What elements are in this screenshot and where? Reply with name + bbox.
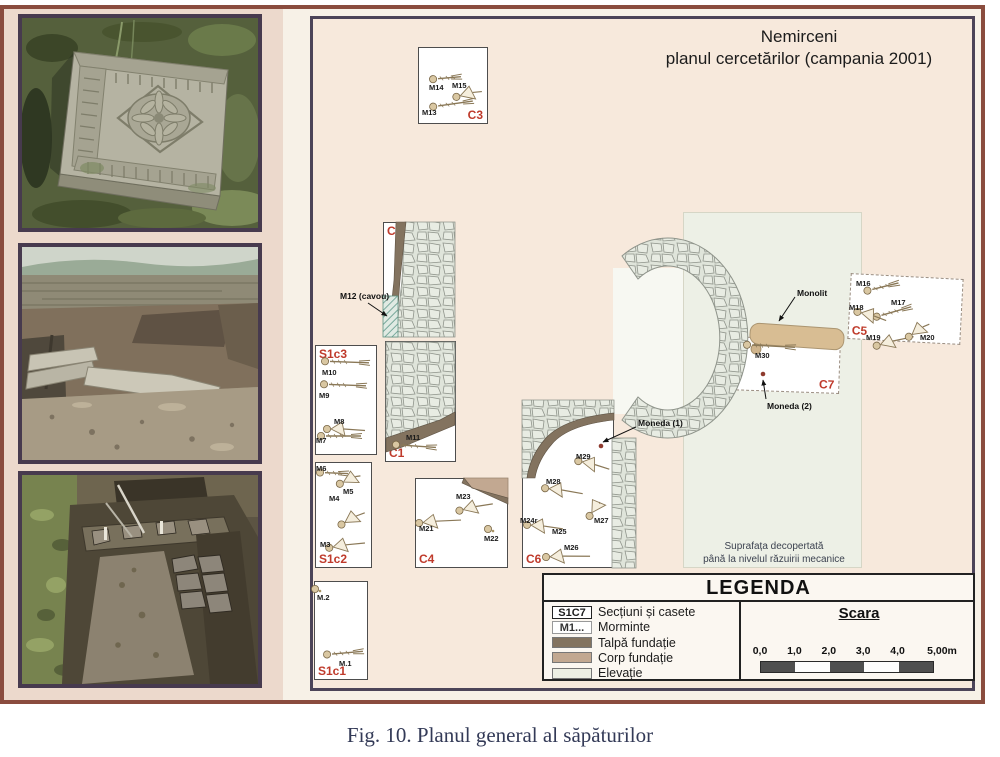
grave-label: M5 bbox=[343, 488, 353, 496]
scale-bar-segment bbox=[899, 662, 933, 672]
legend-title: LEGENDA bbox=[544, 575, 973, 602]
photo-excavation-landscape bbox=[18, 243, 262, 464]
legend-item: M1...Morminte bbox=[552, 620, 650, 634]
grave-label: M18 bbox=[849, 304, 864, 312]
scale-tick-label: 0,0 bbox=[753, 645, 768, 657]
legend-key: M1... bbox=[552, 621, 592, 634]
grave-label: M26 bbox=[564, 544, 579, 552]
grave-label: M27 bbox=[594, 517, 609, 525]
photo-excavation-trench-art bbox=[22, 475, 258, 684]
scale-tick-label: 3,0 bbox=[856, 645, 871, 657]
section-label-C6: C6 bbox=[526, 553, 541, 565]
grave-label: M19 bbox=[866, 334, 881, 342]
grave-label: M11 bbox=[406, 434, 420, 442]
section-S1c2: S1c2 bbox=[315, 462, 372, 568]
photo-excavation-trench bbox=[18, 471, 262, 688]
grave-label: M16 bbox=[856, 280, 871, 288]
legend-item: Corp fundație bbox=[552, 651, 673, 665]
grave-label: M28 bbox=[546, 478, 561, 486]
legend-swatch bbox=[552, 637, 592, 648]
grave-label: M.2 bbox=[317, 594, 330, 602]
grave-label: M8 bbox=[334, 418, 344, 426]
section-label-S1c3: S1c3 bbox=[319, 348, 347, 360]
scale-bar-segment bbox=[795, 662, 829, 672]
grave-label: M6 bbox=[316, 465, 326, 473]
grave-label: M23 bbox=[456, 493, 471, 501]
section-label-C1: C1 bbox=[389, 447, 404, 459]
grave-label: M29 bbox=[576, 453, 591, 461]
legend-box: LEGENDA S1C7Secțiuni și caseteM1...Mormi… bbox=[542, 573, 975, 681]
grave-label: M22 bbox=[484, 535, 499, 543]
scale-tick-label: 1,0 bbox=[787, 645, 802, 657]
legend-item-label: Secțiuni și casete bbox=[598, 605, 695, 619]
grave-label: M4 bbox=[329, 495, 339, 503]
surface-note-line2: până la nivelul răzuirii mecanice bbox=[688, 553, 860, 566]
grave-label: M30 bbox=[755, 352, 770, 360]
legend-item-label: Elevație bbox=[598, 666, 642, 680]
section-label-C2: C2 bbox=[387, 225, 402, 237]
photo-carved-tombstone bbox=[18, 14, 262, 232]
legend-item-label: Talpă fundație bbox=[598, 636, 676, 650]
section-C2: C2 bbox=[383, 222, 455, 337]
legend-item-label: Corp fundație bbox=[598, 651, 673, 665]
grave-label: M7 bbox=[316, 437, 326, 445]
tombstone bbox=[50, 52, 228, 210]
grave-label: M15 bbox=[452, 82, 467, 90]
section-C7: C7 bbox=[726, 336, 841, 394]
scale-bar bbox=[760, 661, 934, 673]
legend-key: S1C7 bbox=[552, 606, 592, 619]
scale-tick-label: 5,00m bbox=[927, 645, 957, 657]
grave-label: M10 bbox=[322, 369, 337, 377]
photo-excavation-landscape-art bbox=[22, 247, 258, 460]
grave-label: M17 bbox=[891, 299, 906, 307]
grave-label: M24r bbox=[520, 517, 538, 525]
figure-caption: Fig. 10. Planul general al săpăturilor bbox=[0, 723, 1000, 748]
legend-item: Elevație bbox=[552, 666, 642, 680]
section-label-C4: C4 bbox=[419, 553, 434, 565]
elevation-notch bbox=[613, 268, 683, 414]
grave-label: M3 bbox=[320, 541, 330, 549]
scale-tick-label: 2,0 bbox=[821, 645, 836, 657]
surface-note-line1: Suprafața decopertată bbox=[688, 540, 860, 553]
legend-swatch bbox=[552, 652, 592, 663]
annotation-label: Moneda (1) bbox=[638, 419, 683, 428]
plan-title-line1: Nemirceni bbox=[615, 26, 983, 48]
annotation-label: M12 (cavou) bbox=[340, 292, 389, 301]
photo-carved-tombstone-art bbox=[22, 18, 258, 228]
legend-item: Talpă fundație bbox=[552, 636, 676, 650]
section-C1: C1 bbox=[385, 341, 456, 462]
annotation-label: Moneda (2) bbox=[767, 402, 812, 411]
scale-title: Scara bbox=[741, 605, 977, 622]
grave-label: M13 bbox=[422, 109, 437, 117]
grave-label: M20 bbox=[920, 334, 935, 342]
grave-label: M9 bbox=[319, 392, 329, 400]
section-label-S1c2: S1c2 bbox=[319, 553, 347, 565]
plan-title: Nemirceni planul cercetărilor (campania … bbox=[615, 26, 983, 70]
section-label-C7: C7 bbox=[819, 378, 835, 391]
annotation-label: Monolit bbox=[797, 289, 827, 298]
grave-label: M.1 bbox=[339, 660, 352, 668]
scale-tick-label: 4,0 bbox=[890, 645, 905, 657]
grave-label: M25 bbox=[552, 528, 567, 536]
section-label-C3: C3 bbox=[468, 109, 483, 121]
scale-bar-segment bbox=[864, 662, 898, 672]
legend-item: S1C7Secțiuni și casete bbox=[552, 605, 695, 619]
surface-note: Suprafața decopertată până la nivelul ră… bbox=[688, 540, 860, 566]
grave-label: M21 bbox=[419, 525, 434, 533]
scale-bar-segment bbox=[830, 662, 864, 672]
figure-page: C3C2S1c3C1S1c2C4C6S1c1C7C5 bbox=[0, 0, 1000, 757]
scale-bar-segment bbox=[761, 662, 795, 672]
plan-title-line2: planul cercetărilor (campania 2001) bbox=[615, 48, 983, 70]
grave-label: M14 bbox=[429, 84, 444, 92]
legend-item-label: Morminte bbox=[598, 620, 650, 634]
legend-swatch bbox=[552, 668, 592, 679]
